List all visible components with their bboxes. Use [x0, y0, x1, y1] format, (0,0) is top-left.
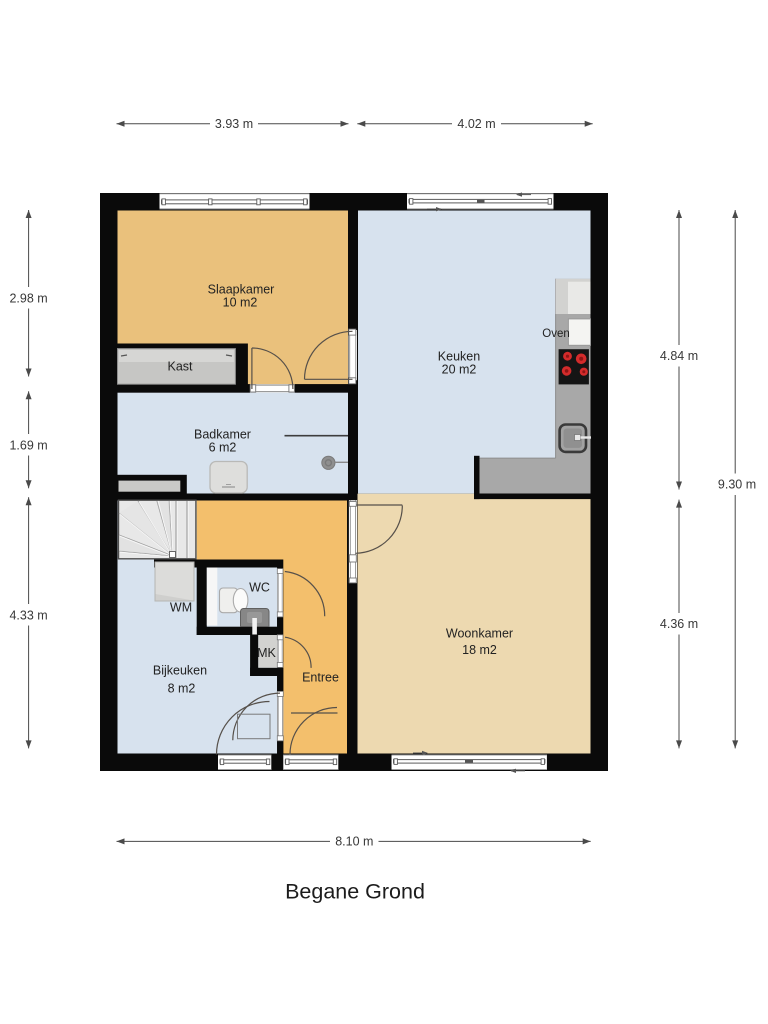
- svg-text:Badkamer: Badkamer: [194, 428, 251, 442]
- svg-text:8 m2: 8 m2: [168, 682, 196, 696]
- svg-text:10 m2: 10 m2: [223, 296, 258, 310]
- svg-text:Slaapkamer: Slaapkamer: [208, 283, 275, 297]
- svg-text:4.33 m: 4.33 m: [9, 608, 47, 622]
- svg-text:1.69 m: 1.69 m: [9, 438, 47, 452]
- svg-text:8.10 m: 8.10 m: [335, 835, 373, 849]
- svg-text:20 m2: 20 m2: [442, 363, 477, 377]
- svg-text:6 m2: 6 m2: [209, 441, 237, 455]
- svg-text:4.84 m: 4.84 m: [660, 349, 698, 363]
- svg-text:Oven: Oven: [542, 328, 570, 340]
- svg-text:Keuken: Keuken: [438, 350, 480, 364]
- svg-text:4.02 m: 4.02 m: [457, 117, 495, 131]
- svg-text:Kast: Kast: [167, 360, 193, 374]
- svg-text:Entree: Entree: [302, 671, 339, 685]
- svg-text:Begane Grond: Begane Grond: [285, 880, 425, 904]
- svg-text:3.93 m: 3.93 m: [215, 117, 253, 131]
- svg-text:9.30 m: 9.30 m: [718, 478, 756, 492]
- svg-text:WC: WC: [249, 581, 270, 595]
- svg-text:Woonkamer: Woonkamer: [446, 627, 513, 641]
- svg-text:MK: MK: [257, 646, 276, 660]
- svg-text:2.98 m: 2.98 m: [9, 291, 47, 305]
- svg-text:4.36 m: 4.36 m: [660, 617, 698, 631]
- svg-text:18 m2: 18 m2: [462, 643, 497, 657]
- svg-text:Bijkeuken: Bijkeuken: [153, 664, 207, 678]
- svg-text:WM: WM: [170, 601, 192, 615]
